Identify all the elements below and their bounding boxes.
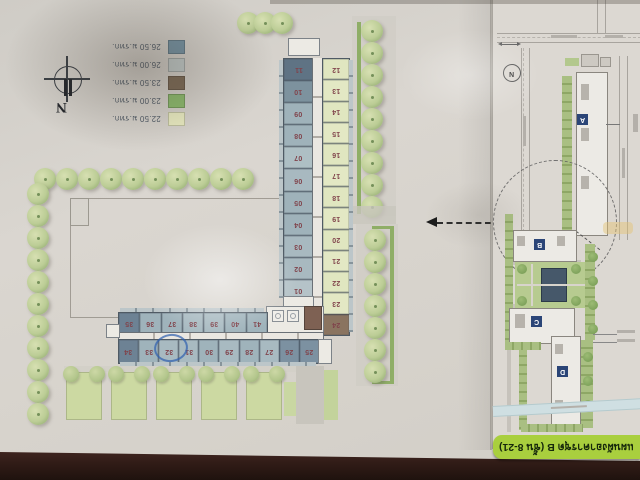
unit-number: 01 (294, 287, 302, 294)
tree-icon (588, 300, 598, 310)
tree-icon (78, 168, 100, 190)
tree-icon (27, 381, 49, 403)
unit-cell: 10 (284, 80, 313, 102)
building-b (513, 230, 577, 262)
unit-number: 25 (305, 348, 313, 355)
tree-icon (27, 183, 49, 205)
tree-icon (588, 276, 598, 286)
unit-number: 08 (294, 132, 302, 139)
unit-number: 11 (295, 66, 303, 73)
unit-number: 24 (332, 321, 340, 328)
green-verge (284, 382, 296, 416)
unit-cell: 36 (139, 313, 160, 333)
garden-plot (246, 372, 282, 420)
unit-cell: 15 (323, 122, 349, 143)
tree-row-north (34, 168, 254, 190)
green-patch (565, 58, 579, 66)
unit-number: 26 (285, 348, 293, 355)
tree-icon (361, 86, 383, 108)
road-line (605, 0, 606, 33)
tree-icon (100, 168, 122, 190)
tree-icon (364, 273, 386, 295)
unit-number: 35 (125, 320, 133, 327)
balcony-strip-east (349, 60, 353, 332)
tree-icon (27, 271, 49, 293)
unit-cell: 07 (284, 146, 313, 168)
road-line (619, 56, 620, 240)
tree-icon (27, 403, 49, 425)
tree-border (505, 342, 541, 350)
unit-cell: 23 (323, 292, 349, 313)
tree-icon (27, 227, 49, 249)
legend-color-swatch (168, 40, 185, 54)
green-verge (324, 370, 338, 420)
garden-plot (201, 372, 237, 420)
unit-cell: 27 (259, 340, 279, 363)
legend-label: 26.50 ม.รทก. (112, 40, 161, 53)
unit-number: 07 (294, 154, 302, 161)
tree-icon (361, 42, 383, 64)
unit-cell: 16 (323, 143, 349, 164)
building-vertical-east-units: 12 13 14 15 16 17 18 19 20 21 (322, 58, 350, 336)
unit-cell: 41 (246, 313, 267, 333)
unit-cell: 22 (323, 271, 349, 292)
unit-cell: 25 (299, 340, 319, 363)
entrance-stub (106, 324, 120, 338)
unit-number: 38 (189, 320, 197, 327)
unit-cell: 17 (323, 165, 349, 186)
building-vertical-west-units: 11 10 09 08 07 06 05 04 03 02 (283, 58, 314, 302)
compass-n-letter: N (56, 98, 67, 115)
unit-cell: 05 (284, 191, 313, 213)
tree-icon (27, 337, 49, 359)
tree-cluster-top (242, 12, 293, 34)
unit-number: 29 (225, 348, 233, 355)
legend-color-swatch (168, 94, 185, 108)
unit-number: 39 (210, 320, 218, 327)
legend-color-swatch (168, 112, 185, 126)
unit-number: 22 (332, 279, 340, 286)
overview-n-letter: N (509, 70, 514, 77)
legend-row: 22.50 ม.รทก. (95, 112, 185, 125)
unit-number: 19 (332, 215, 340, 222)
unit-number: 05 (294, 199, 302, 206)
tree-column-west (27, 183, 49, 425)
road-label-text (605, 35, 623, 38)
unit-number: 40 (231, 320, 239, 327)
stair-core (272, 310, 284, 322)
lobby-north (288, 38, 320, 56)
unit-number: 14 (332, 108, 340, 115)
building-horizontal-north-units: 35 36 37 38 39 40 41 (118, 312, 268, 334)
tree-icon (27, 293, 49, 315)
unit-cell: 21 (323, 250, 349, 271)
tree-icon (188, 168, 210, 190)
unit-number: 12 (332, 66, 340, 73)
unit-number: 23 (332, 300, 340, 307)
unit-cell: 30 (198, 340, 218, 363)
unit-number: 41 (253, 320, 261, 327)
unit-cell: 35 (119, 313, 139, 333)
legend-color-swatch (168, 76, 185, 90)
tree-icon (27, 359, 49, 381)
tree-icon (361, 152, 383, 174)
annotation-text (617, 339, 635, 342)
overview-north-icon: N (503, 64, 521, 82)
unit-cell: 18 (323, 186, 349, 207)
unit-cell: 12 (323, 59, 349, 79)
north-compass-icon: N (48, 56, 94, 118)
tree-icon (232, 168, 254, 190)
legend-row: 23.00 ม.รทก. (95, 94, 185, 107)
tree-icon (583, 376, 593, 386)
unit-number: 04 (294, 221, 302, 228)
road-line (597, 0, 598, 33)
unit-cell: 13 (323, 79, 349, 100)
unit-cell: 14 (323, 101, 349, 122)
building-c-label: C (531, 316, 542, 327)
legend-label: 23.00 ม.รทก. (112, 94, 161, 107)
plan-sheet-main: 26.50 ม.รทก. 26.00 ม.รทก. 23.50 ม.รทก. 2… (0, 0, 640, 480)
tree-icon (364, 317, 386, 339)
building-core (581, 128, 589, 141)
unit-number: 27 (265, 348, 273, 355)
building-a-label: A (577, 114, 588, 125)
courtyard-corner-structure (70, 198, 89, 226)
unit-cell: 20 (323, 229, 349, 250)
unit-cell: 29 (218, 340, 238, 363)
locator-arrow-head-icon (426, 217, 437, 227)
road-line (497, 33, 640, 34)
tree-strip-east-lower (364, 229, 386, 383)
unit-cell: 02 (284, 257, 313, 279)
garden-plot (156, 372, 192, 420)
compass-circle (54, 66, 82, 94)
driveway (350, 206, 396, 224)
unit-cell: 04 (284, 213, 313, 235)
tree-icon (56, 168, 78, 190)
unit-cell: 24 (323, 314, 349, 335)
building-d-label: D (557, 366, 568, 377)
legend-color-swatch (168, 58, 185, 72)
tree-icon (271, 12, 293, 34)
stair-end-cap (318, 339, 332, 364)
tree-border (519, 348, 527, 430)
photo-of-floor-plan: 26.50 ม.รทก. 26.00 ม.รทก. 23.50 ม.รทก. 2… (0, 0, 640, 480)
tree-icon (122, 168, 144, 190)
tree-icon (27, 315, 49, 337)
building-core (581, 84, 589, 100)
leader-line (593, 342, 617, 343)
elevation-legend: 26.50 ม.รทก. 26.00 ม.รทก. 23.50 ม.รทก. 2… (95, 40, 185, 125)
garden-plot (66, 372, 102, 420)
unit-cell: 03 (284, 235, 313, 257)
unit-number: 30 (205, 348, 213, 355)
tree-icon (517, 264, 527, 274)
hedge-line (390, 228, 394, 384)
tree-icon (588, 252, 598, 262)
tree-icon (364, 295, 386, 317)
unit-number: 13 (332, 87, 340, 94)
building-core (517, 236, 525, 246)
garden-path (531, 264, 533, 306)
tree-icon (364, 361, 386, 383)
unit-number: 16 (332, 151, 340, 158)
unit-number: 33 (145, 348, 153, 355)
unit-number: 34 (124, 348, 132, 355)
plan-title-text: แผนผังอาคารชุด B (ชั้น 8-21) (499, 439, 634, 456)
garden-plot (111, 372, 147, 420)
service-unit (304, 306, 322, 330)
courtyard-outline (70, 198, 290, 318)
tree-icon (361, 174, 383, 196)
garden-path (517, 284, 585, 286)
tree-icon (210, 168, 232, 190)
tree-icon (517, 296, 527, 306)
unit-cell: 06 (284, 168, 313, 190)
unit-number: 37 (168, 320, 176, 327)
annotation-text (633, 114, 638, 132)
tree-icon (361, 64, 383, 86)
unit-cell: 39 (203, 313, 224, 333)
unit-cell: 08 (284, 124, 313, 146)
tree-icon (588, 324, 598, 334)
elevator-core (287, 310, 299, 322)
leader-line (606, 124, 620, 125)
plan-title-banner: แผนผังอาคารชุด B (ชั้น 8-21) (493, 435, 640, 459)
annotation-text (617, 330, 635, 333)
unit-cell: 37 (161, 313, 182, 333)
unit-cell: 09 (284, 102, 313, 124)
unit-number: 18 (332, 194, 340, 201)
locator-arrow-dash (437, 222, 491, 224)
tree-icon (364, 229, 386, 251)
tree-border (521, 424, 583, 432)
sheet-fold-line (490, 0, 492, 450)
tree-icon (361, 130, 383, 152)
unit-number: 03 (294, 243, 302, 250)
unit-number: 28 (245, 348, 253, 355)
unit-number: 10 (294, 88, 302, 95)
tree-icon (364, 251, 386, 273)
road-label-text (551, 405, 587, 409)
compass-needle-bar (69, 79, 72, 96)
tree-icon (27, 249, 49, 271)
arrow-right-icon (517, 42, 521, 46)
unit-number: 02 (294, 265, 302, 272)
unit-number: 21 (332, 257, 340, 264)
arrow-left-icon (498, 42, 502, 46)
building-core (515, 314, 525, 328)
tree-icon (361, 108, 383, 130)
scale-arrow (501, 44, 517, 45)
tree-icon (361, 20, 383, 42)
small-structure (581, 54, 599, 67)
building-core (557, 236, 565, 246)
tree-icon (144, 168, 166, 190)
legend-row: 26.00 ม.รทก. (95, 58, 185, 71)
tree-icon (166, 168, 188, 190)
tree-strip-east-upper (361, 20, 383, 218)
tree-icon (583, 352, 593, 362)
compass-needle-bar (64, 79, 67, 96)
unit-number: 17 (332, 172, 340, 179)
unit-cell: 19 (323, 207, 349, 228)
unit-cell: 34 (119, 340, 138, 363)
unit-number: 20 (332, 236, 340, 243)
building-horizontal-south-units: 34 33 32 31 30 29 28 27 26 25 (118, 339, 320, 364)
legend-row: 23.50 ม.รทก. (95, 76, 185, 89)
tree-icon (27, 205, 49, 227)
legend-label: 23.50 ม.รทก. (112, 76, 161, 89)
road-line (627, 56, 628, 240)
road-label-text (622, 148, 625, 178)
unit-cell: 28 (239, 340, 259, 363)
unit-number: 06 (294, 177, 302, 184)
building-b-label: B (534, 239, 545, 250)
tree-icon (571, 264, 581, 274)
small-structure (600, 57, 611, 67)
building-core (555, 344, 563, 354)
unit-cell: 40 (224, 313, 245, 333)
road-label-text (523, 116, 526, 146)
road-label-text (551, 35, 577, 38)
unit-number: 36 (146, 320, 154, 327)
tree-icon (571, 296, 581, 306)
legend-label: 22.50 ม.รทก. (112, 112, 161, 125)
tree-icon (364, 339, 386, 361)
legend-label: 26.00 ม.รทก. (112, 58, 161, 71)
plan-sheet-overview: N A (492, 0, 640, 449)
road-south (296, 366, 324, 424)
leader-line (593, 334, 617, 335)
unit-cell: 11 (284, 59, 313, 80)
highlight-mark (603, 222, 633, 234)
legend-row: 26.50 ม.รทก. (95, 40, 185, 53)
unit-number: 15 (332, 130, 340, 137)
unit-cell: 38 (182, 313, 203, 333)
unit-number: 09 (294, 110, 302, 117)
unit-cell: 26 (279, 340, 299, 363)
garden-plots (66, 372, 282, 420)
